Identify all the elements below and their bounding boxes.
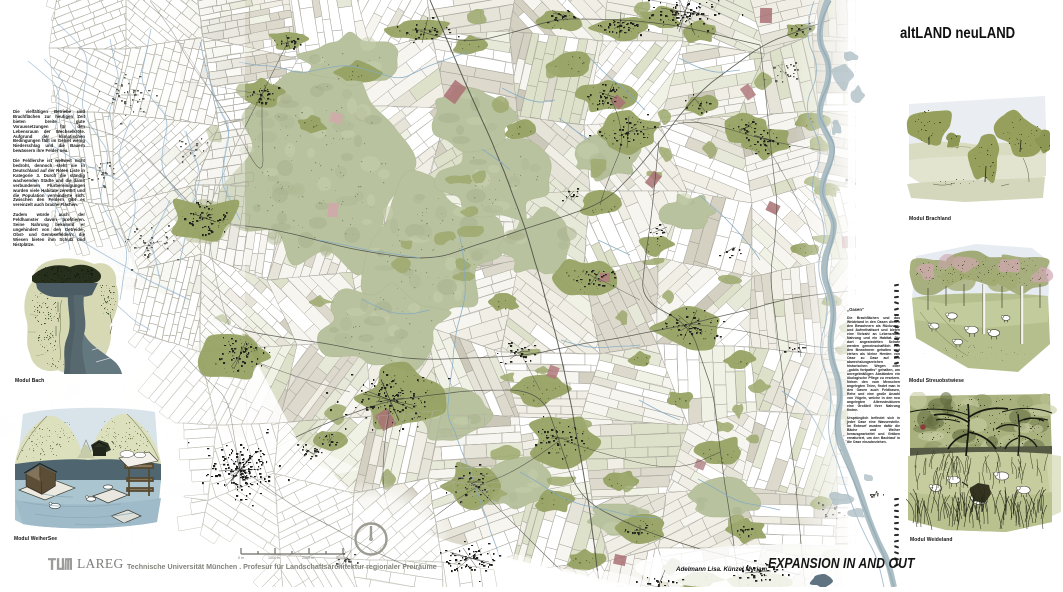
svg-text:1000 m: 1000 m [268,556,280,560]
svg-text:0 m: 0 m [238,556,244,560]
svg-text:2000 m: 2000 m [302,556,314,560]
svg-text:3000 m: 3000 m [336,556,348,560]
